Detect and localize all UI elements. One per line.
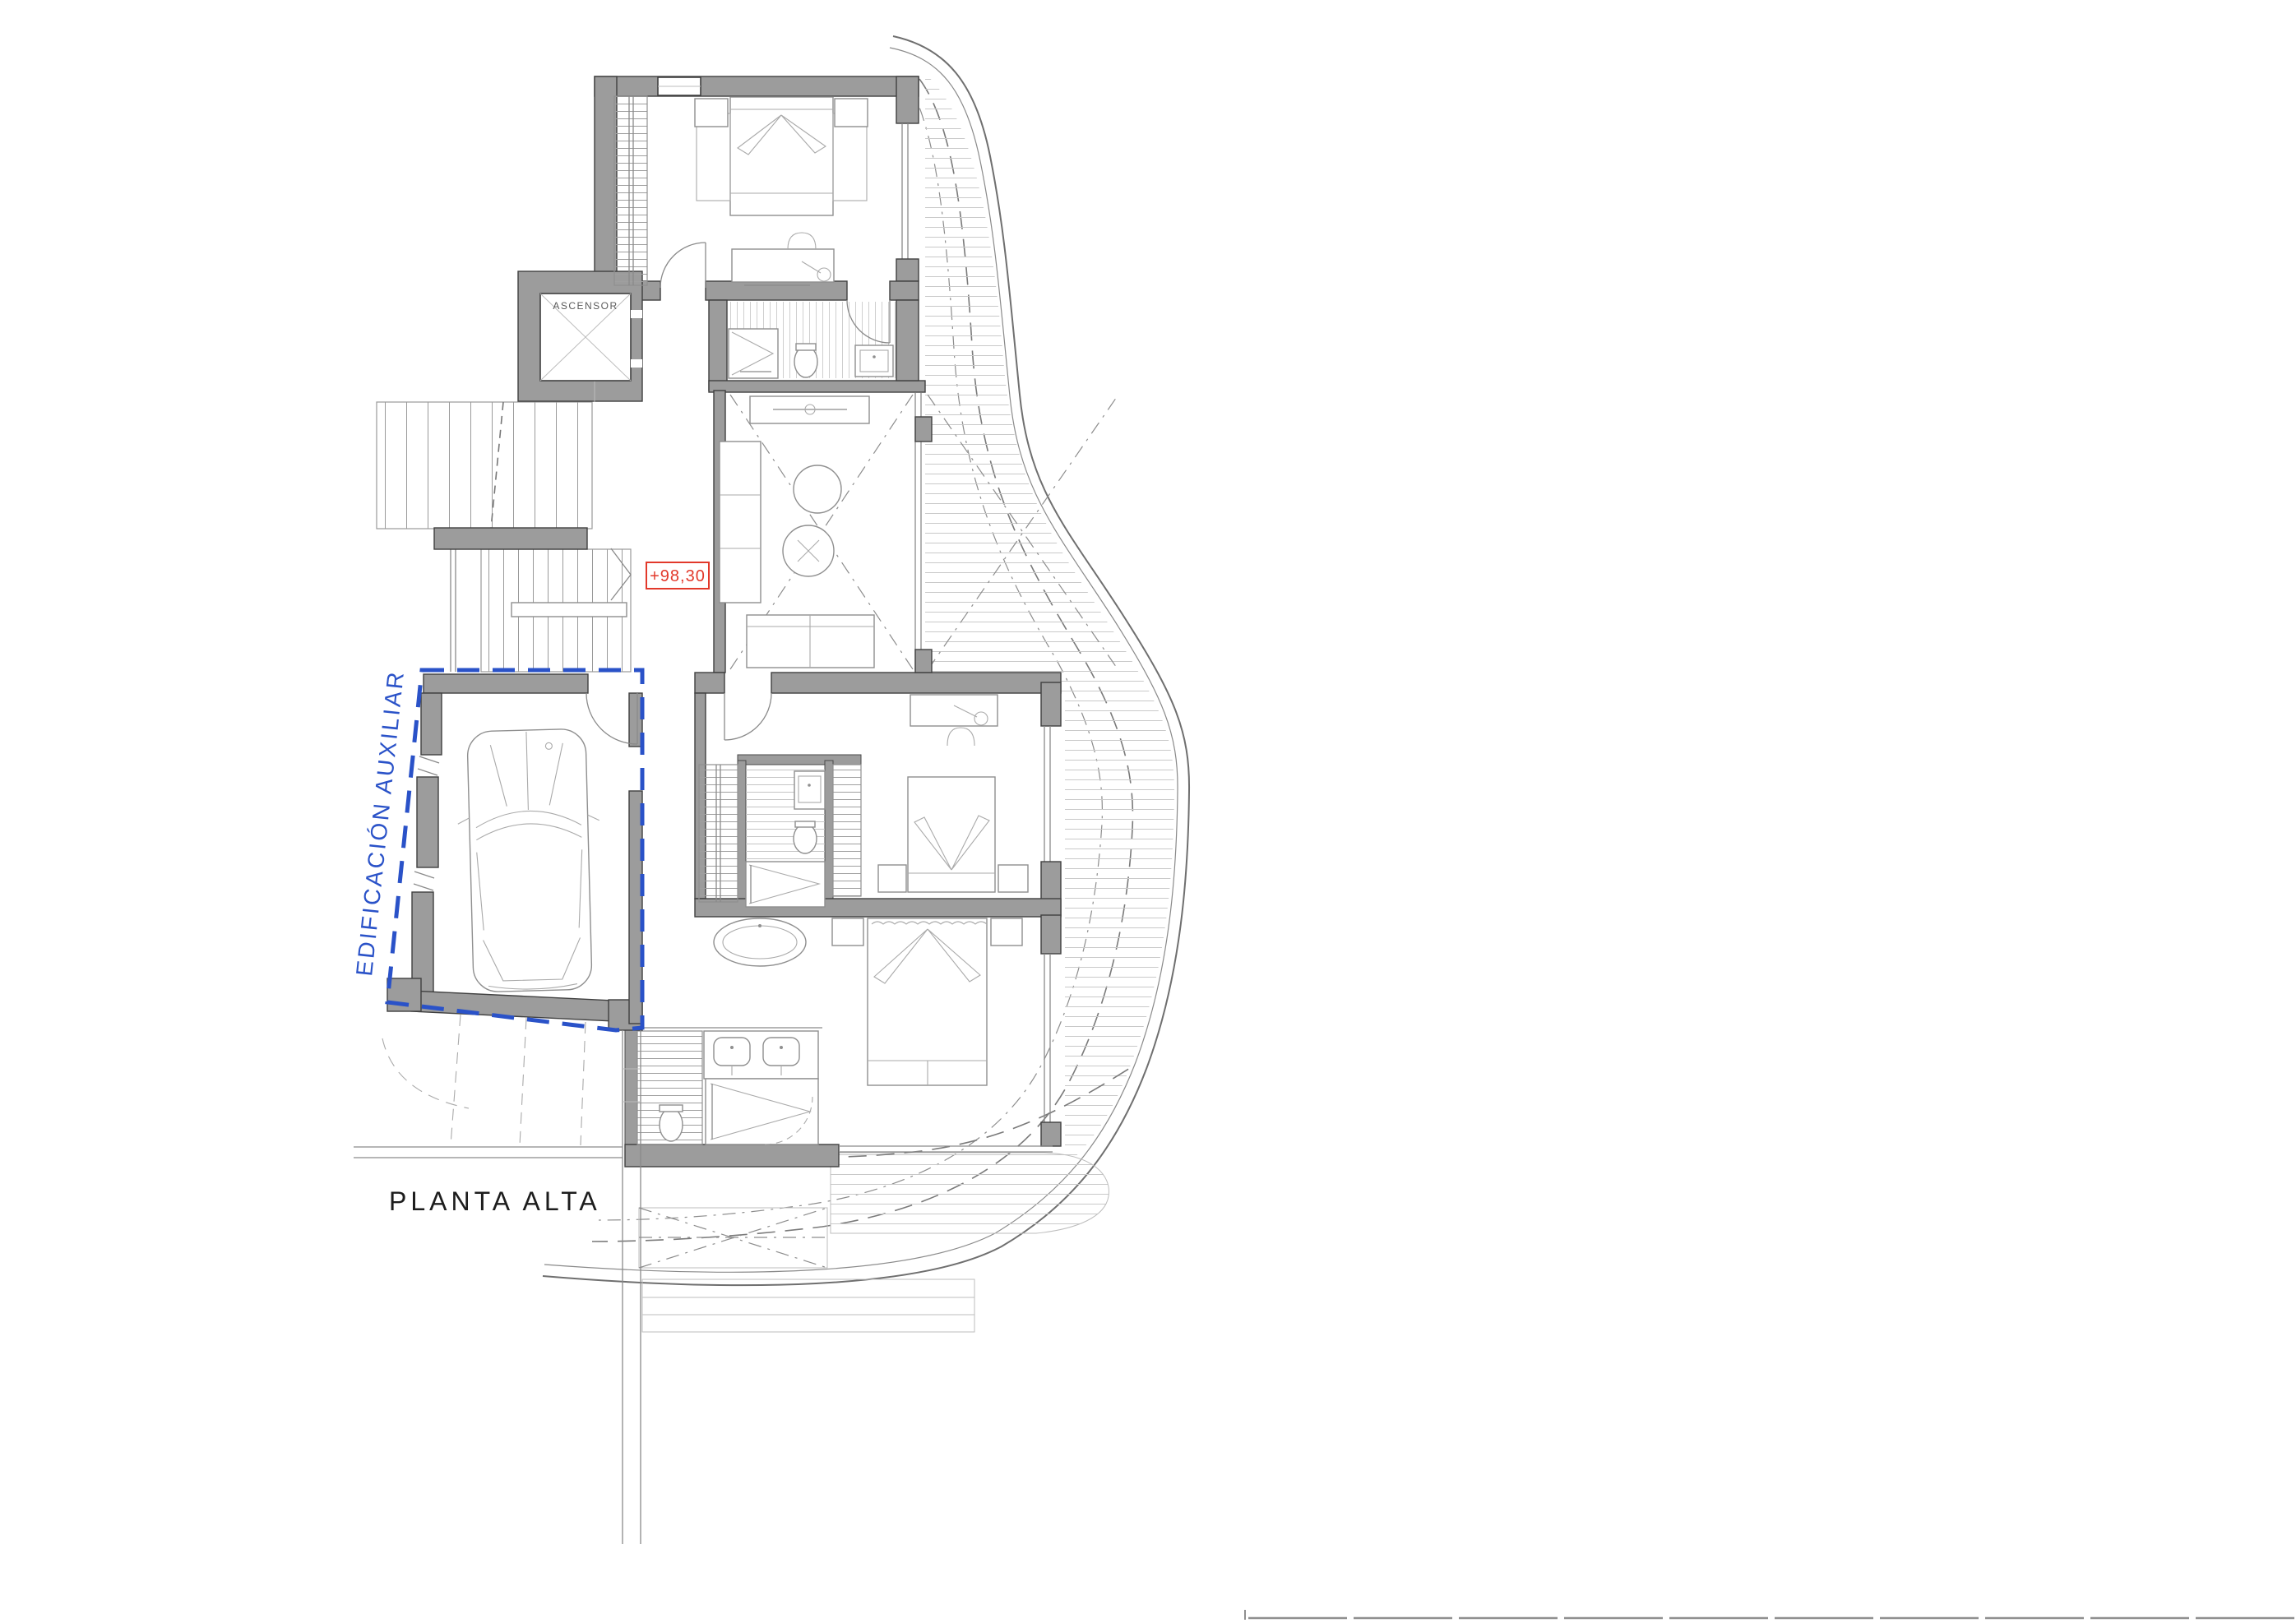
- garage: [387, 674, 642, 1030]
- wall-living-south: [771, 673, 1061, 693]
- master-bathroom: [637, 1031, 818, 1144]
- double-washbasin-vanity: [704, 1031, 818, 1079]
- wall-bath1-east: [896, 300, 919, 381]
- wardrobe: [699, 765, 738, 902]
- wall-bedroom1-south-east: [890, 281, 919, 300]
- lounge-chair: [794, 465, 841, 513]
- bathtub: [714, 918, 806, 966]
- elevator-door-gap: [631, 359, 642, 368]
- toilet: [794, 344, 817, 377]
- washbasin-vanity: [855, 345, 893, 377]
- desk-chair: [788, 233, 816, 249]
- auxiliary-building-label: EDIFICACIÓN AUXILIAR: [351, 668, 409, 977]
- wall-pillar-master-se: [1041, 1122, 1061, 1146]
- nightstand: [878, 865, 906, 892]
- door-arc-bedroom1: [660, 243, 706, 288]
- level-annotation-text: +98,30: [650, 567, 706, 585]
- wall-master-south: [625, 1144, 839, 1167]
- wall-living-south-west: [695, 673, 724, 693]
- wall-bedroom1-east-upper: [896, 76, 919, 123]
- level-annotation: +98,30: [646, 562, 709, 589]
- wall-masterbath-west: [625, 1024, 637, 1144]
- bathroom-2: [699, 765, 861, 907]
- nightstand: [832, 918, 863, 946]
- toilet: [794, 821, 817, 853]
- nightstand: [695, 99, 728, 127]
- elevator-door-gap: [631, 310, 642, 318]
- desk: [910, 695, 998, 746]
- wall-bedroom1-west: [595, 76, 617, 281]
- wall-bath2-north: [738, 755, 861, 765]
- toilet: [660, 1105, 683, 1141]
- shower: [729, 329, 778, 378]
- nightstand: [998, 865, 1028, 892]
- window-mullion-living: [915, 417, 932, 442]
- desk: [732, 233, 834, 285]
- floor-plan-drawing: ASCENSOR: [0, 0, 2296, 1623]
- desk-chair: [947, 728, 974, 746]
- interior-staircase: [451, 548, 631, 672]
- wall-pillar-bedroom2-ne: [1041, 682, 1061, 726]
- wall-bedroom1-east-lower: [896, 259, 919, 281]
- wardrobe: [833, 765, 861, 896]
- wall-garage-north: [424, 674, 588, 693]
- nightstand: [991, 918, 1022, 946]
- wardrobe: [614, 96, 647, 285]
- shower: [706, 1079, 818, 1144]
- deck-cross-platform: [639, 1208, 827, 1268]
- wall-bath1-south: [709, 381, 925, 392]
- sheet-border-line: [1245, 1610, 2294, 1620]
- wall-bedroom1-south: [706, 281, 847, 300]
- wall-garage-west: [417, 777, 438, 867]
- washbasin-vanity: [794, 771, 825, 809]
- wall-pillar-living-se: [915, 650, 932, 673]
- bathroom-1: [727, 300, 896, 378]
- double-bed: [695, 97, 868, 215]
- car: [456, 728, 604, 992]
- elevator: ASCENSOR: [540, 294, 642, 381]
- wall-bedroom1-north: [595, 76, 919, 96]
- bedroom-1: [614, 96, 868, 288]
- double-bed: [832, 918, 1022, 1085]
- floor-plan-sheet: ASCENSOR: [0, 0, 2296, 1623]
- door-arc-hall: [724, 693, 771, 740]
- double-bed: [878, 777, 1028, 892]
- wall-bath2-east: [825, 761, 833, 907]
- wall-garage-south: [411, 991, 631, 1022]
- elevator-label: ASCENSOR: [553, 300, 618, 312]
- bedroom-2: [878, 695, 1028, 892]
- drawing-title: PLANTA ALTA: [389, 1186, 601, 1216]
- deck-planks-south: [822, 1147, 1118, 1242]
- exterior-staircase: [377, 402, 592, 529]
- wall-bath1-west: [709, 300, 727, 391]
- stair-handrail: [512, 603, 627, 617]
- nightstand: [835, 99, 868, 127]
- wall-bath2-west: [738, 761, 746, 907]
- wall-stair-north: [434, 528, 587, 549]
- shower: [746, 862, 825, 907]
- wall-pillar-master-ne: [1041, 915, 1061, 954]
- wall-garage-west: [421, 693, 442, 755]
- tv-sideboard: [750, 396, 869, 423]
